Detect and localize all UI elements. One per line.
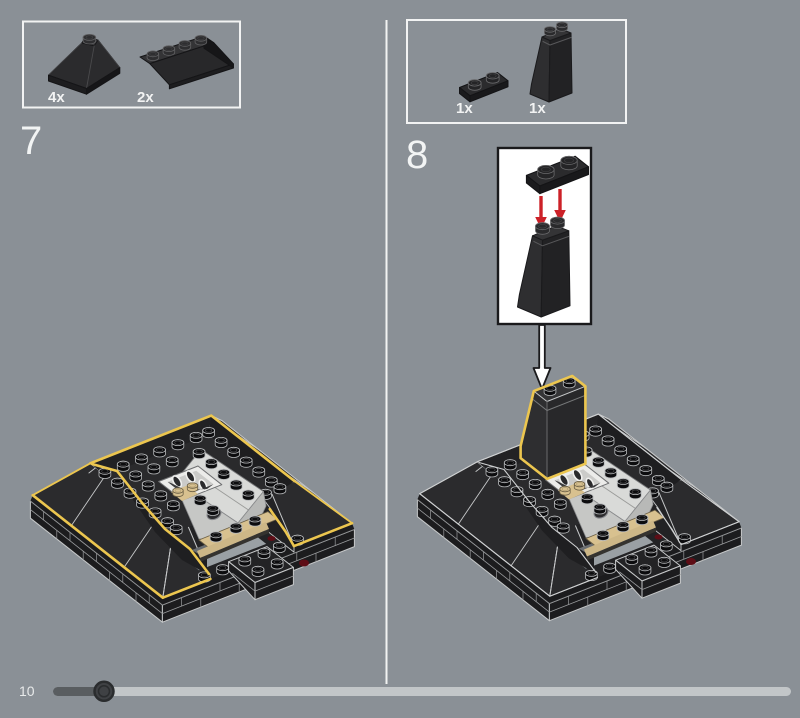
svg-text:7: 7 xyxy=(20,119,42,163)
svg-text:2x: 2x xyxy=(137,89,154,106)
svg-text:4x: 4x xyxy=(48,89,65,106)
svg-text:1x: 1x xyxy=(456,100,473,117)
svg-text:10: 10 xyxy=(19,683,35,699)
svg-text:8: 8 xyxy=(406,133,428,177)
svg-text:1x: 1x xyxy=(529,100,546,117)
